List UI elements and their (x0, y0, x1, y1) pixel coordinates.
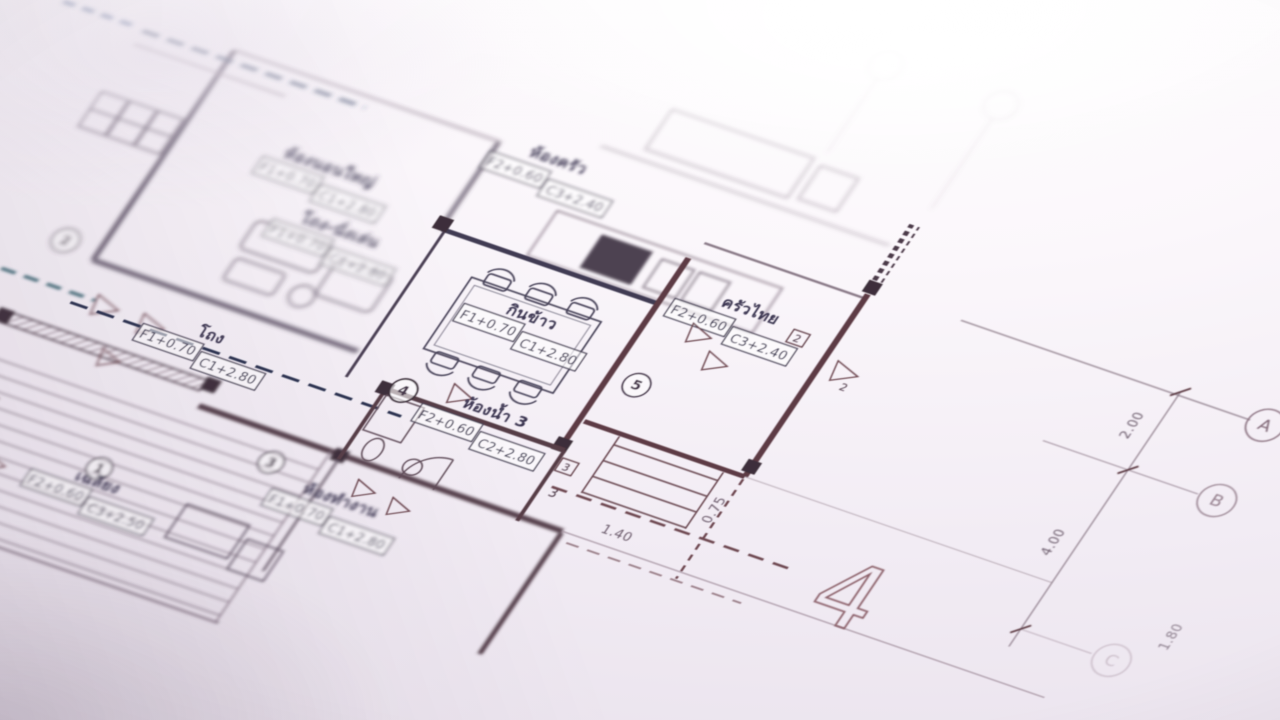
dashed-blue-segment (64, 2, 140, 28)
dashed-teal-line (0, 198, 95, 301)
big-numeral-4: 4 (788, 540, 908, 653)
bedroom-label: ห้องนอนใหญ่ F1+0.70 C1+2.80 (248, 139, 402, 223)
hatched-wall-north (868, 223, 919, 285)
dim-2-00: 2.00 (1117, 410, 1148, 441)
svg-text:2: 2 (836, 381, 850, 394)
door-number-3: 3 (253, 449, 289, 477)
dim-1-40: 1.40 (598, 523, 636, 546)
dining-label: กินข้าว F1+0.70 C1+2.80 (448, 288, 601, 371)
window-symbols-porch (0, 278, 171, 495)
bath-fixtures (343, 395, 476, 490)
blueprint-photo: ห้องนอนใหญ่ F1+0.70 C1+2.80 โถง-นั่งเล่น… (0, 0, 1280, 720)
svg-text:2: 2 (790, 332, 804, 345)
dashed-gridline-top (143, 31, 365, 108)
dim-0-75: 0.75 (699, 495, 730, 526)
faint-grid-bubbles (801, 47, 1025, 214)
grid-bubble-c: C (1084, 640, 1138, 682)
svg-text:A: A (1254, 416, 1277, 436)
grid-bubble-b: B (1190, 480, 1244, 522)
mid-zone: ห้องครัว F2+0.60 C3+2.40 (0, 0, 815, 718)
svg-text:3: 3 (559, 461, 573, 474)
grid-bubble-a: A (1238, 404, 1280, 446)
dim-4-00: 4.00 (1038, 527, 1069, 558)
svg-text:B: B (1205, 491, 1227, 511)
dim-1-80: 1.80 (1156, 622, 1187, 653)
dashed-stair-line (552, 487, 793, 570)
sharp-zone: โถง F1+0.70 C1+2.80 (14, 4, 1278, 720)
svg-text:C: C (1100, 651, 1122, 671)
door-number-5: 5 (617, 370, 656, 400)
door-number-2: 2 (46, 225, 85, 255)
floor-plan-sheet: ห้องนอนใหญ่ F1+0.70 C1+2.80 โถง-นั่งเล่น… (0, 0, 1280, 720)
thai-kitchen-room (515, 170, 920, 581)
wardrobe-furniture (78, 91, 183, 154)
thai-kitchen-label: ครัวไทย F2+0.60 C3+2.40 (659, 279, 815, 366)
